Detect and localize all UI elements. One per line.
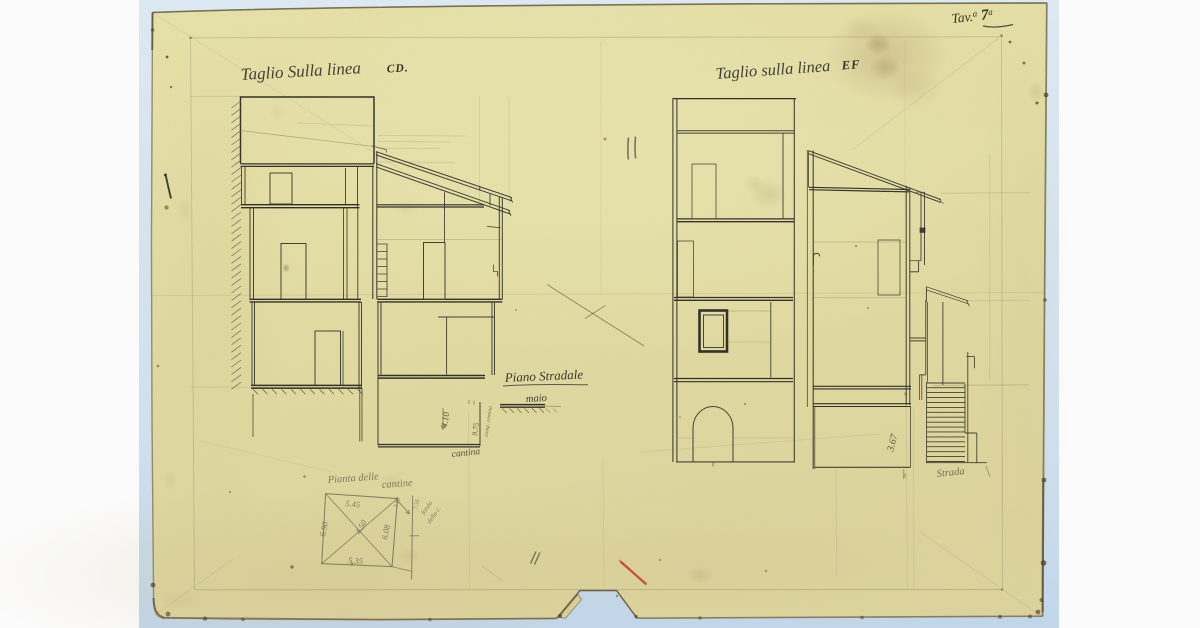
svg-text:cantine: cantine [381,478,413,491]
svg-text:maio: maio [526,393,548,405]
svg-text:EF: EF [840,57,861,72]
svg-text:5.35: 5.35 [348,555,364,566]
svg-text:CD.: CD. [386,62,408,75]
svg-text:5.45: 5.45 [345,498,361,510]
svg-text:9.75: 9.75 [470,422,481,436]
